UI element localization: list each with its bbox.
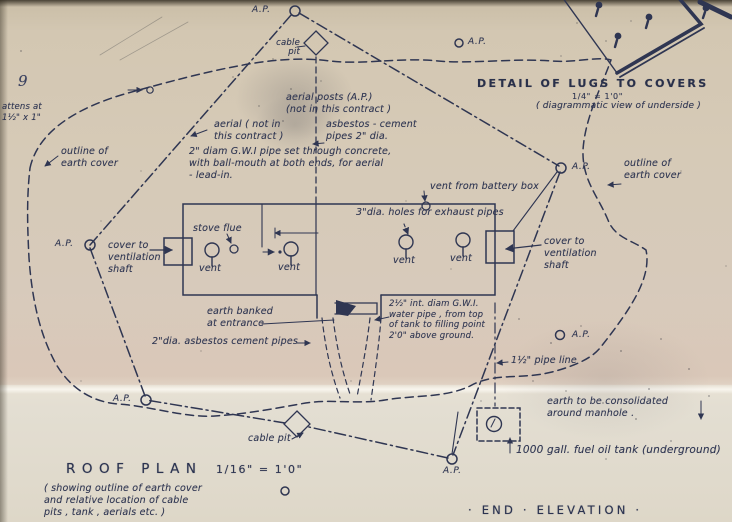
ap-label-left: A.P. <box>55 239 74 250</box>
battery-vent-arrow <box>424 191 425 201</box>
end-elevation-title: · END · ELEVATION · <box>468 503 642 517</box>
cable-pit-top-label: cable pit <box>266 39 300 58</box>
vent-label-3: vent <box>393 255 415 267</box>
vent-label-4: vent <box>450 253 472 265</box>
aerial-note: aerial ( not in this contract ) <box>214 119 284 143</box>
asbestos-cement-pipes-note: asbestos - cement pipes 2" dia. <box>326 119 417 143</box>
outline-earth-cover-left: outline of earth cover <box>61 146 118 170</box>
gwi-pipe-note: 2" diam G.W.I pipe set through concrete,… <box>189 146 391 182</box>
ap-label-bottom: A.P. <box>443 466 462 477</box>
outline-earth-cover-right: outline of earth cover <box>624 158 681 182</box>
vent-label-1: vent <box>199 263 221 275</box>
roof-plan-scale: 1/16" = 1'0" <box>216 463 303 477</box>
lug-marks <box>596 3 708 47</box>
ap-label-mid-right: A.P. <box>572 330 591 341</box>
vent-shaft-cover-right <box>486 231 514 263</box>
ap-label-top-right: A.P. <box>468 37 487 48</box>
exhaust-holes-arrow <box>404 224 408 234</box>
roof-plan-subtitle: ( showing outline of earth cover and rel… <box>44 483 202 519</box>
scanned-roof-plan-drawing: 9 A.P. A.P. A.P. A.P. A.P. A.P. A.P. aer… <box>0 0 732 522</box>
dimension-line <box>275 228 318 238</box>
ap-label-right: A.P. <box>572 162 591 173</box>
ap-label-apex: A.P. <box>252 5 271 16</box>
water-pipe-note: 2½" int. diam G.W.I. water pipe , from t… <box>389 299 485 342</box>
ap-label-bottom-left: A.P. <box>113 394 132 405</box>
cable-pit-top-diamond <box>304 31 328 55</box>
vent-shaft-cover-left <box>164 238 192 265</box>
earth-consolidated-label: earth to be consolidated around manhole … <box>547 396 668 420</box>
detail-title: DETAIL OF LUGS TO COVERS <box>477 77 709 90</box>
stove-flue-label: stove flue <box>193 223 242 235</box>
manhole-tick <box>491 419 495 427</box>
roof-plan-title: ROOF PLAN <box>66 461 203 477</box>
page-number: 9 <box>18 72 28 90</box>
fuel-tank-label: 1000 gall. fuel oil tank (underground) <box>516 444 721 457</box>
pipe-line-label: 1½" pipe line <box>511 355 577 367</box>
lugs-detail-shape <box>560 0 731 77</box>
aerial-posts-note: aerial posts (A.P.) (not in this contrac… <box>286 92 391 116</box>
fuel-tank <box>477 408 520 441</box>
vent-label-2: vent <box>278 262 300 274</box>
cable-pit-bottom-label: cable pit <box>248 433 291 445</box>
vent-battery-box-label: vent from battery box <box>430 181 539 193</box>
cover-ventilation-right-label: cover to ventilation shaft <box>544 236 597 272</box>
manhole-circle <box>487 417 502 432</box>
earth-banked-label: earth banked at entrance <box>207 306 273 330</box>
earth-bank-flares <box>322 318 381 400</box>
pipe-point <box>278 250 281 253</box>
vent-circles <box>205 233 470 266</box>
stove-flue-arrow <box>227 234 231 243</box>
detail-subtitle: ( diagrammatic view of underside ) <box>536 101 701 112</box>
stove-flue-circle <box>230 245 238 253</box>
cover-ventilation-left-label: cover to ventilation shaft <box>108 240 161 276</box>
cover-right-arrow <box>506 245 541 249</box>
battens-note: attens at 1½" x 1" <box>2 102 42 123</box>
exhaust-holes-label: 3"dia. holes for exhaust pipes <box>356 207 504 219</box>
asbestos-cement-pipes-2-label: 2"dia. asbestos cement pipes <box>152 336 298 348</box>
pencil-streaks <box>100 17 188 60</box>
